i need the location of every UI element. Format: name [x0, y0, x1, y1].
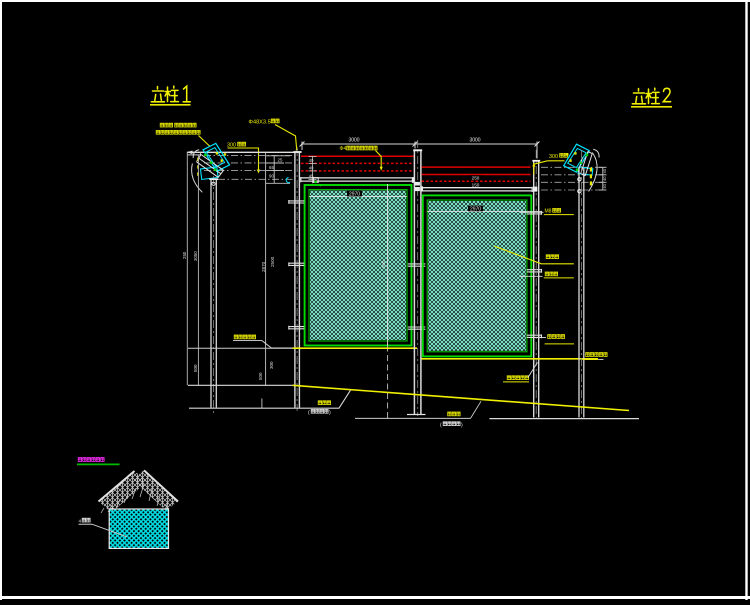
svg-text:500: 500 — [381, 260, 386, 268]
svg-text:40: 40 — [602, 183, 607, 188]
svg-text:65: 65 — [269, 165, 274, 170]
svg-text:150: 150 — [472, 183, 480, 188]
svg-text:(: ( — [308, 410, 310, 416]
svg-text:40: 40 — [309, 165, 314, 170]
svg-text:300: 300 — [269, 361, 274, 369]
svg-text:): ) — [461, 422, 463, 428]
svg-text:Φ48X3.5: Φ48X3.5 — [249, 120, 271, 126]
svg-text:90: 90 — [269, 174, 274, 179]
svg-text:500: 500 — [193, 364, 198, 372]
svg-text:3050: 3050 — [193, 251, 198, 261]
svg-text:): ) — [329, 410, 331, 416]
svg-text:40: 40 — [602, 176, 607, 181]
svg-text:40: 40 — [602, 168, 607, 173]
svg-text:40: 40 — [309, 158, 314, 163]
svg-text:3000: 3000 — [469, 138, 480, 144]
svg-text:(: ( — [440, 422, 442, 428]
svg-text:M8: M8 — [545, 209, 552, 215]
svg-text:2870: 2870 — [261, 261, 266, 272]
svg-text:4: 4 — [79, 518, 82, 523]
svg-text:250: 250 — [472, 175, 480, 180]
svg-text:300: 300 — [549, 154, 558, 160]
svg-text:2500: 2500 — [270, 256, 275, 267]
svg-text:3000: 3000 — [348, 138, 359, 144]
svg-text:2970: 2970 — [470, 206, 481, 212]
svg-text:500: 500 — [258, 372, 263, 380]
svg-text:2970: 2970 — [349, 192, 360, 198]
svg-text:250: 250 — [182, 251, 187, 259]
svg-text:25: 25 — [278, 157, 283, 162]
svg-text:Φ4: Φ4 — [340, 146, 347, 152]
